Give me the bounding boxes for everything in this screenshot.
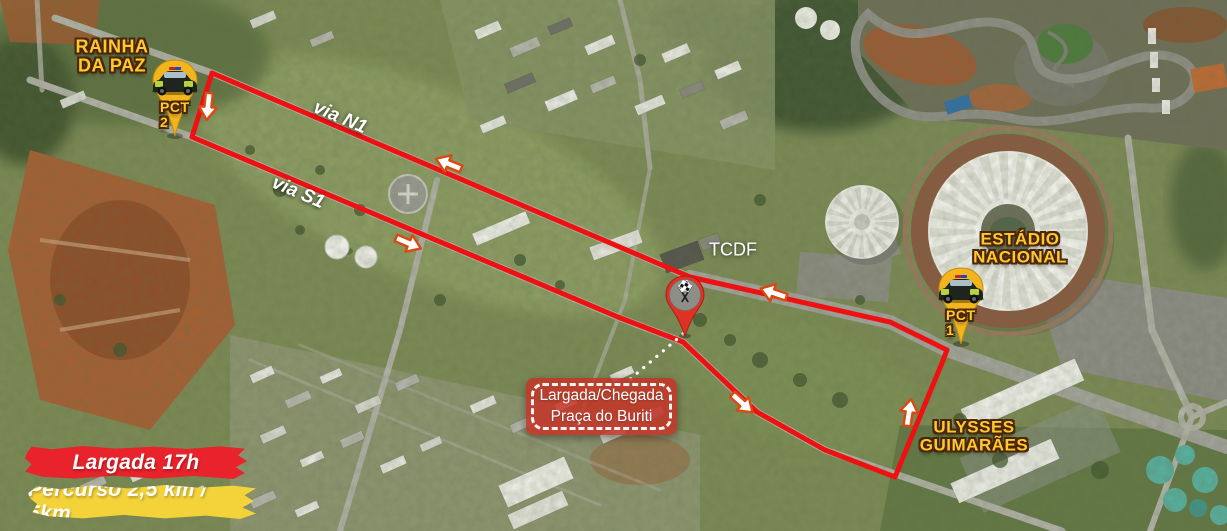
label-tcdf: TCDF [709, 240, 757, 261]
callout-line1: Largada/Chegada [539, 386, 663, 406]
start-finish-pin [662, 274, 708, 340]
checkpoint-pin-pct2: PCT 2 [145, 56, 205, 140]
label-rainha-line2: DA PAZ [76, 57, 149, 76]
start-time-banner: Largada 17h [25, 446, 247, 479]
checkered-flags-icon [662, 274, 708, 340]
label-rainha-line1: RAINHA [76, 38, 149, 57]
label-estadio-nacional: ESTÁDIO NACIONAL [973, 231, 1067, 268]
label-ulysses-guimaraes: ULYSSES GUIMARÃES [920, 419, 1028, 456]
callout-line2: Praça do Buriti [539, 407, 663, 427]
checkpoint-pin-pct1: PCT 1 [931, 264, 991, 348]
label-ulysses-line1: ULYSSES [920, 419, 1028, 437]
label-ulysses-line2: GUIMARÃES [920, 437, 1028, 455]
race-course-map: RAINHA DA PAZ via N1 via S1 TCDF ESTÁDIO… [0, 0, 1227, 531]
label-rainha-da-paz: RAINHA DA PAZ [76, 38, 149, 77]
callout-text: Largada/Chegada Praça do Buriti [539, 386, 663, 426]
pct2-label: PCT 2 [160, 100, 190, 130]
course-distance-banner: Percurso 2,5 km / 5km [28, 485, 256, 519]
start-finish-callout: Largada/Chegada Praça do Buriti [526, 378, 677, 435]
pct1-label: PCT 1 [946, 308, 976, 338]
label-estadio-line1: ESTÁDIO [973, 231, 1067, 249]
